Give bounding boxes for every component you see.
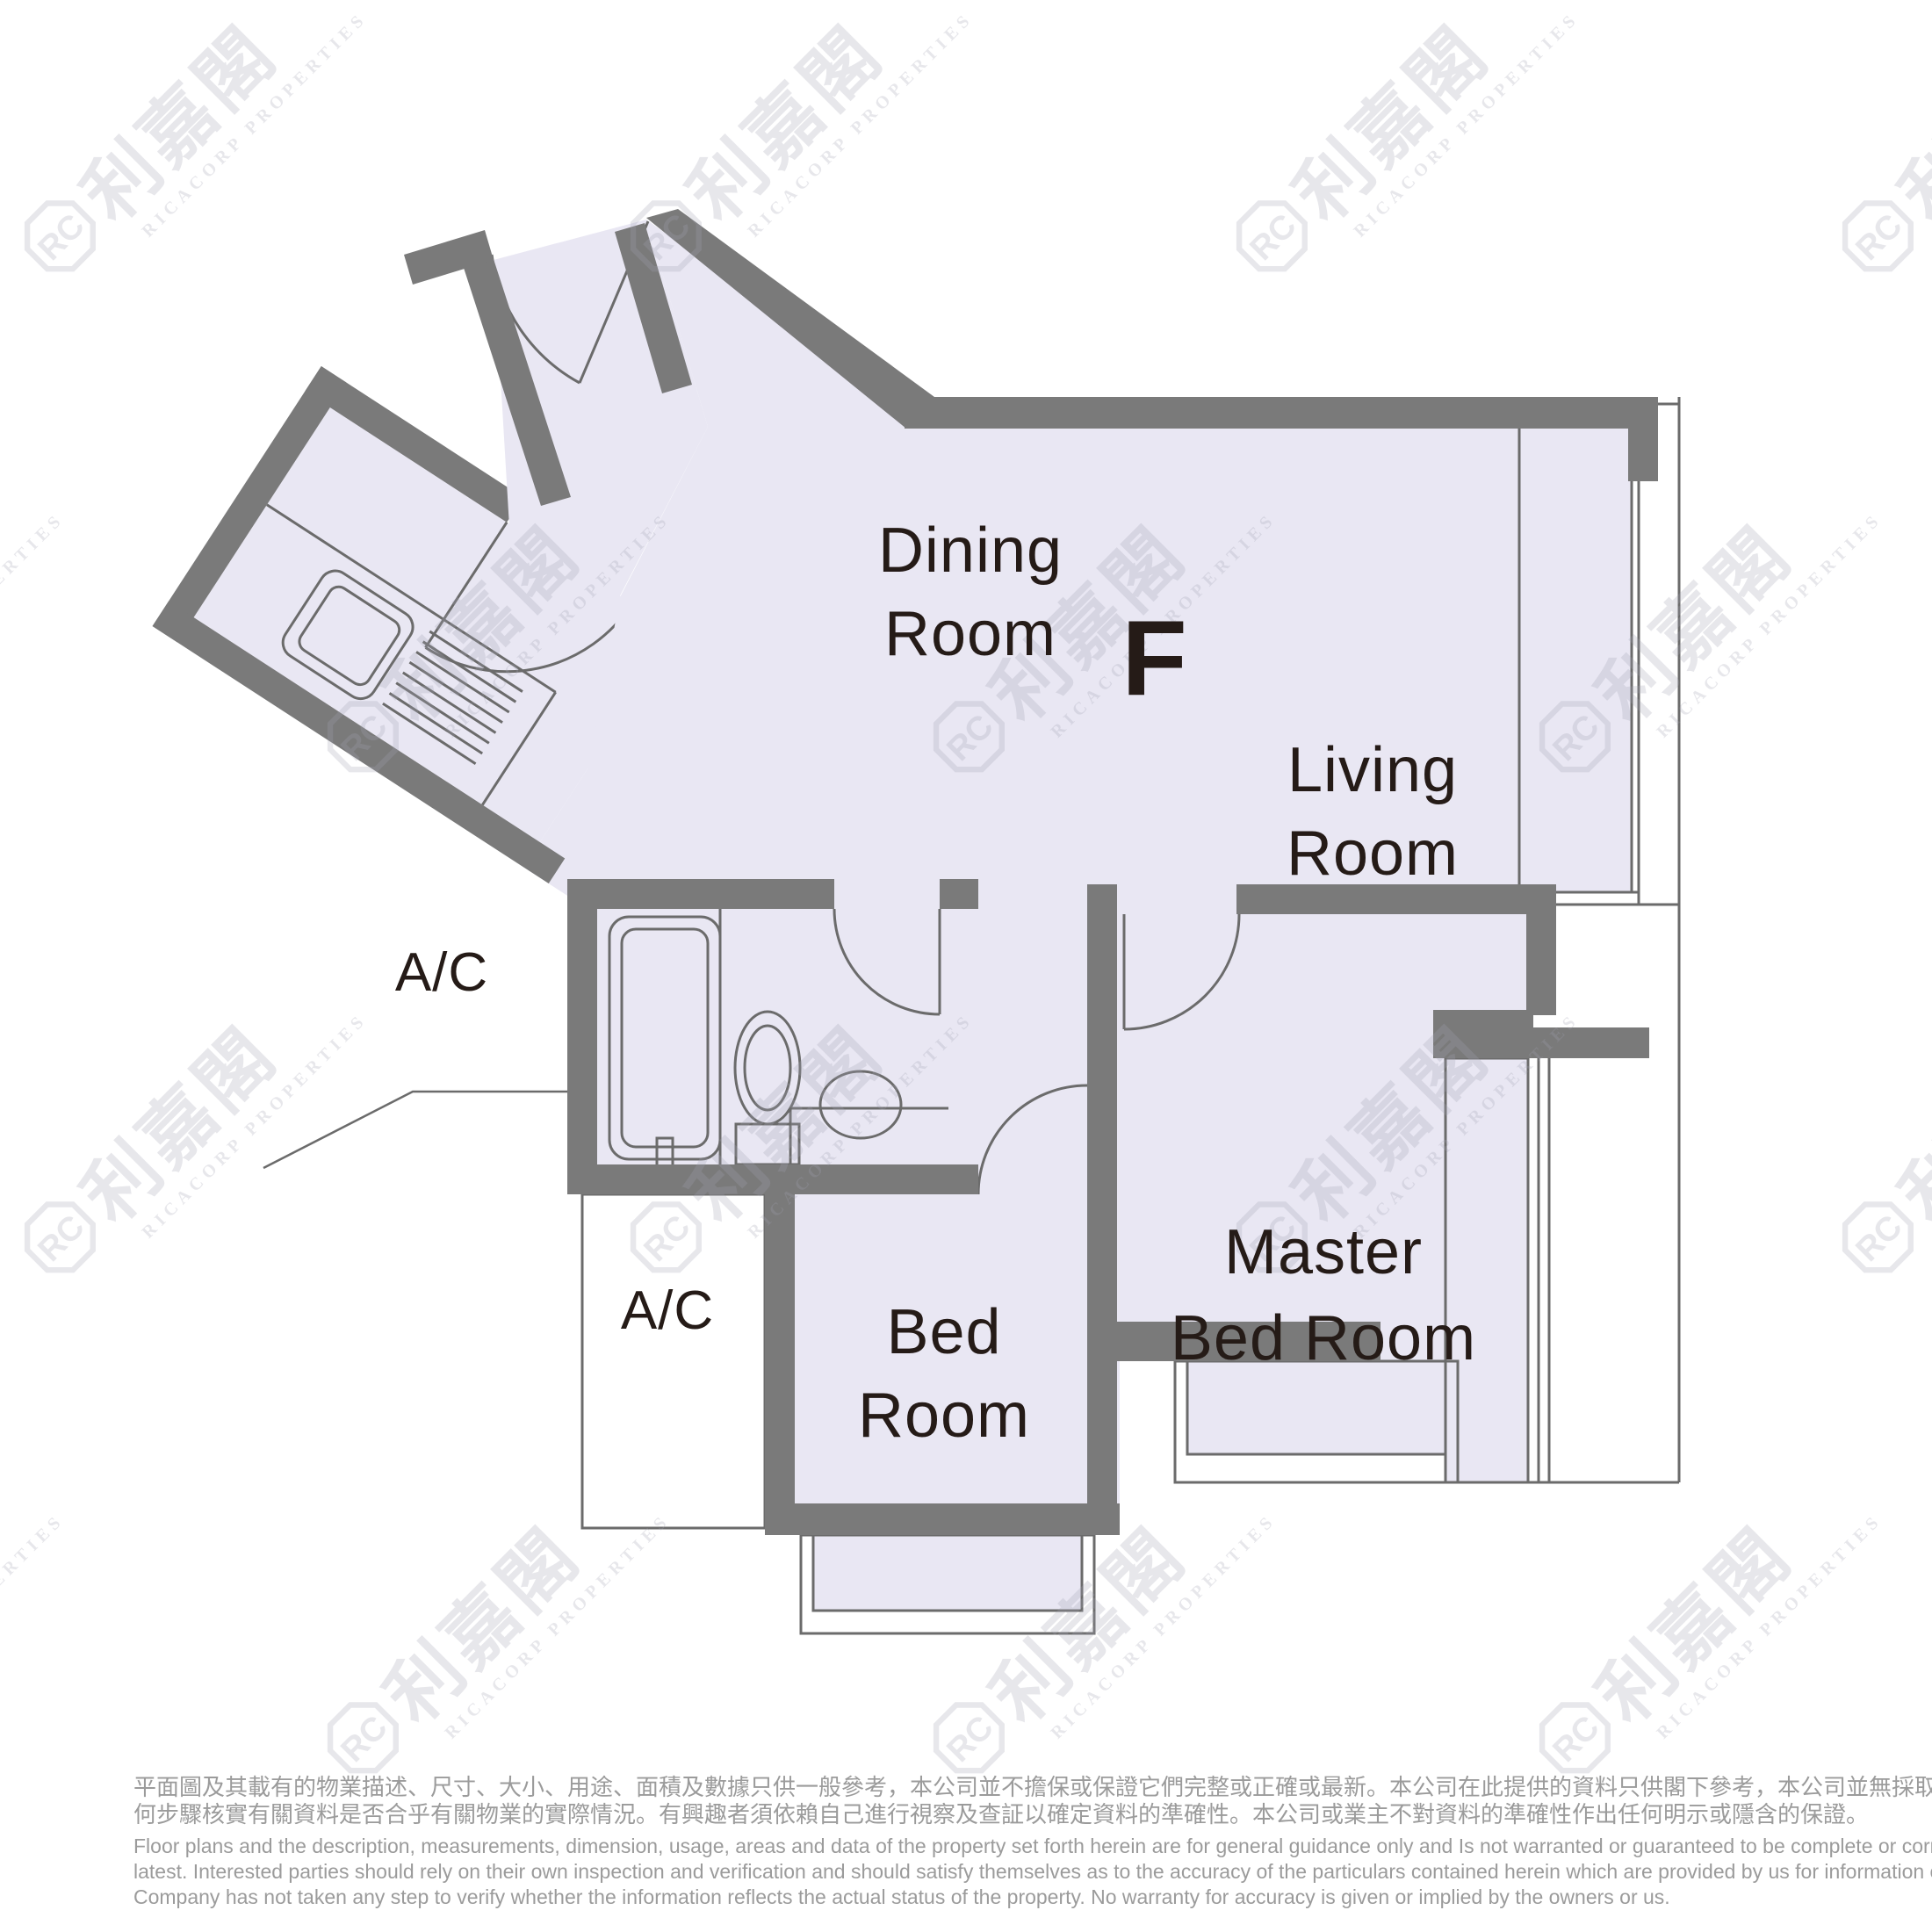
ac-label-2: A/C bbox=[580, 1280, 755, 1343]
ac-label-1: A/C bbox=[354, 941, 530, 1005]
disclaimer-english: Floor plans and the description, measure… bbox=[133, 1834, 1809, 1910]
disclaimer-chinese: 平面圖及其載有的物業描述、尺寸、大小、用途、面積及數據只供一般參考，本公司並不擔… bbox=[133, 1774, 1809, 1828]
master-bedroom-label: Master Bed Room bbox=[1139, 1209, 1508, 1381]
ac-platform-1 bbox=[263, 1092, 567, 1168]
unit-letter-label: F bbox=[1089, 604, 1221, 711]
floor-plan-drawing bbox=[0, 0, 1932, 1932]
bedroom-label: Bed Room bbox=[812, 1291, 1076, 1458]
floor-plan-page: RC利嘉閣RICACORP PROPERTIESRC利嘉閣RICACORP PR… bbox=[0, 0, 1932, 1932]
living-room-label: Living Room bbox=[1197, 729, 1548, 896]
ac-platform-2 bbox=[582, 1194, 765, 1528]
